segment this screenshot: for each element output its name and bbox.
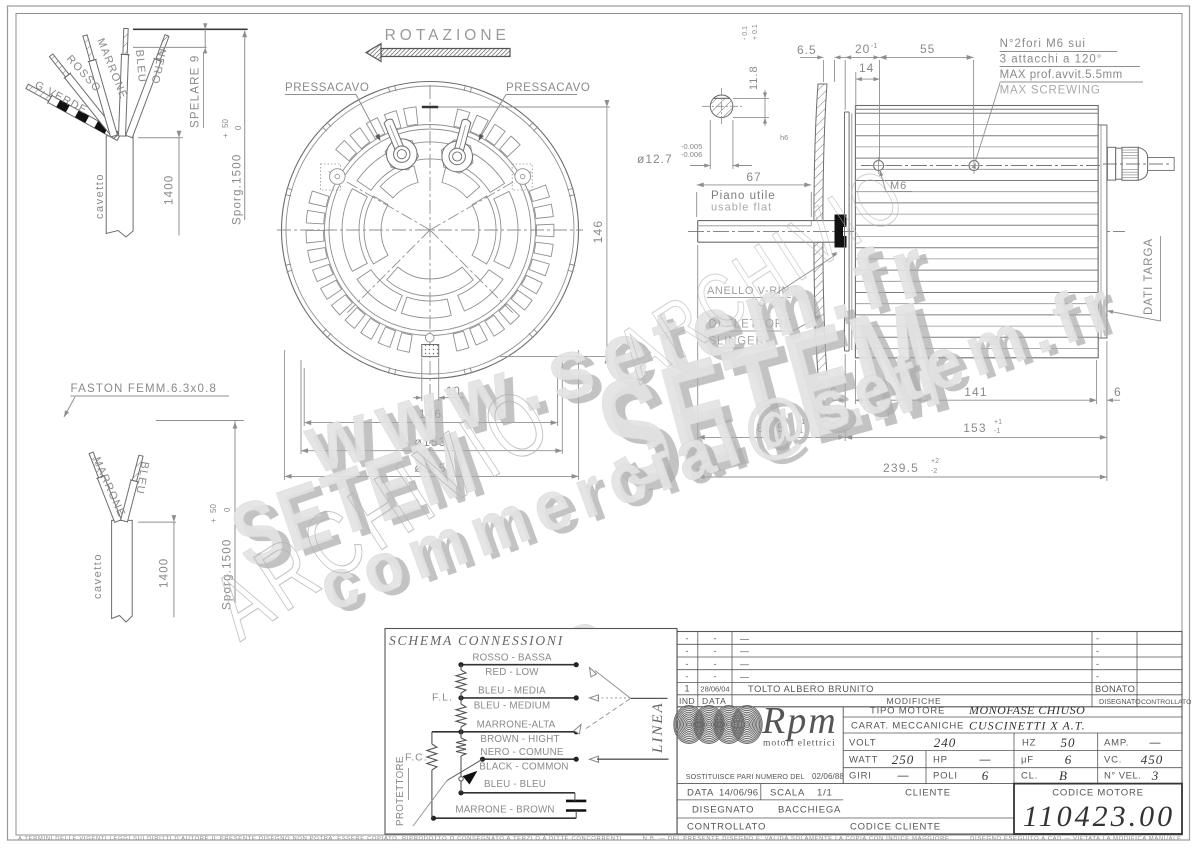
svg-text:DATA: DATA (687, 788, 714, 799)
svg-text:-: - (1096, 646, 1099, 656)
svg-text:MARRONE - BROWN: MARRONE - BROWN (455, 805, 554, 816)
svg-text:ø12.7: ø12.7 (637, 152, 673, 166)
svg-text:250: 250 (892, 752, 915, 767)
svg-text:CARAT. MECCANICHE: CARAT. MECCANICHE (851, 721, 964, 732)
svg-text:—: — (1150, 737, 1161, 749)
svg-text:Piano utile: Piano utile (711, 190, 776, 202)
svg-text:A TERMINI DELLE VIGENTI LEGGI: A TERMINI DELLE VIGENTI LEGGI SUI DIRITT… (18, 836, 1181, 842)
svg-text:50: 50 (221, 119, 230, 128)
svg-text:cavetto: cavetto (94, 173, 106, 219)
svg-text:DISEGNATO: DISEGNATO (692, 805, 754, 816)
svg-text:TOLTO ALBERO BRUNITO: TOLTO ALBERO BRUNITO (748, 684, 874, 694)
svg-text:BONATO: BONATO (1095, 684, 1135, 694)
svg-text:B: B (1059, 768, 1067, 783)
svg-text:DATI TARGA: DATI TARGA (1143, 238, 1155, 315)
svg-text:HP: HP (933, 755, 948, 766)
svg-text:+ 0.1: + 0.1 (752, 24, 759, 40)
svg-text:6.5: 6.5 (797, 43, 817, 57)
svg-text:MARRONE-ALTA: MARRONE-ALTA (477, 720, 556, 731)
svg-text:h6: h6 (780, 133, 788, 142)
svg-text:50: 50 (1061, 735, 1076, 750)
svg-text:+: + (221, 133, 230, 138)
svg-text:1/1: 1/1 (817, 788, 833, 799)
svg-text:110423.00: 110423.00 (1023, 800, 1175, 833)
svg-text:6: 6 (982, 768, 989, 783)
svg-text:motori elettrici: motori elettrici (763, 739, 836, 749)
svg-text:- 0.1: - 0.1 (742, 26, 749, 40)
svg-text:F.L.: F.L. (432, 692, 453, 704)
svg-text:MONOFASE CHIUSO: MONOFASE CHIUSO (968, 703, 1085, 717)
svg-text:WATT: WATT (849, 755, 878, 766)
svg-text:—: — (740, 646, 749, 656)
svg-text:02/06/88: 02/06/88 (812, 772, 844, 781)
svg-text:PROTETTORE: PROTETTORE (395, 756, 406, 826)
svg-text:-1: -1 (994, 428, 1000, 435)
svg-text:HZ: HZ (1022, 738, 1036, 749)
svg-text:-2: -2 (931, 468, 937, 475)
svg-text:3: 3 (1151, 768, 1159, 783)
svg-text:55: 55 (920, 42, 935, 56)
svg-text:LINEA: LINEA (650, 701, 666, 754)
svg-text:3 attacchi a 120°: 3 attacchi a 120° (1000, 54, 1103, 66)
svg-text:+: + (209, 518, 218, 523)
svg-text:—: — (740, 659, 749, 669)
svg-text:14: 14 (859, 61, 874, 75)
svg-text:RED - LOW: RED - LOW (485, 667, 539, 678)
svg-text:μF: μF (1021, 755, 1034, 766)
svg-text:BACCHIEGA: BACCHIEGA (778, 805, 841, 816)
svg-text:BROWN - HIGHT: BROWN - HIGHT (480, 734, 559, 745)
svg-text:NERO - COMUNE: NERO - COMUNE (480, 747, 563, 758)
svg-text:BLACK - COMMON: BLACK - COMMON (479, 762, 568, 773)
svg-text:TIPO MOTORE: TIPO MOTORE (870, 706, 945, 717)
svg-text:DATA: DATA (702, 696, 727, 706)
svg-text:SCHEMA CONNESSIONI: SCHEMA CONNESSIONI (389, 633, 564, 648)
svg-text:-: - (1096, 659, 1099, 669)
svg-text:CUSCINETTI X A.T.: CUSCINETTI X A.T. (969, 719, 1086, 733)
svg-text:BLEU - MEDIA: BLEU - MEDIA (478, 686, 546, 697)
svg-text:MAX SCREWING: MAX SCREWING (1000, 85, 1101, 97)
svg-text:-: - (714, 646, 717, 656)
svg-text:AMP.: AMP. (1104, 738, 1129, 749)
svg-text:SPELARE 9: SPELARE 9 (190, 55, 202, 128)
svg-text:IND: IND (679, 696, 695, 706)
svg-text:GIRI: GIRI (849, 771, 872, 782)
svg-text:CONTROLLATO: CONTROLLATO (1141, 699, 1191, 706)
svg-text:0: 0 (234, 125, 243, 130)
svg-text:PRESSACAVO: PRESSACAVO (506, 82, 590, 94)
svg-text:1400: 1400 (164, 175, 176, 205)
svg-text:POLI: POLI (933, 771, 958, 782)
svg-text:+2: +2 (931, 458, 939, 465)
svg-text:VC.: VC. (1104, 755, 1122, 766)
svg-text:-1: -1 (871, 43, 877, 50)
svg-text:SOSTITUISCE PARI NUMERO DEL: SOSTITUISCE PARI NUMERO DEL (686, 772, 805, 781)
svg-text:N° VEL.: N° VEL. (1104, 771, 1141, 782)
svg-text:ROTAZIONE: ROTAZIONE (385, 27, 510, 44)
svg-text:-: - (714, 672, 717, 682)
svg-text:CONTROLLATO: CONTROLLATO (687, 822, 766, 833)
svg-text:14/06/96: 14/06/96 (719, 788, 758, 799)
svg-text:6: 6 (1065, 752, 1072, 767)
svg-text:CLIENTE: CLIENTE (905, 788, 951, 799)
svg-text:1: 1 (684, 684, 689, 694)
svg-text:MODIFICHE: MODIFICHE (887, 696, 942, 706)
svg-text:Sporg.1500: Sporg.1500 (232, 154, 244, 225)
svg-text:BLEU - BLEU: BLEU - BLEU (484, 779, 546, 790)
svg-text:6: 6 (1114, 385, 1121, 399)
svg-text:-: - (1096, 672, 1099, 682)
svg-text:28/06/04: 28/06/04 (700, 685, 729, 694)
svg-text:67: 67 (746, 170, 761, 184)
svg-text:—: — (740, 634, 749, 644)
svg-text:F.C.: F.C. (405, 752, 428, 764)
svg-text:BLEU - MEDIUM: BLEU - MEDIUM (474, 701, 551, 712)
svg-text:+1: +1 (994, 419, 1002, 426)
svg-text:-: - (686, 672, 689, 682)
svg-text:20: 20 (855, 42, 870, 56)
svg-text:146: 146 (591, 220, 605, 244)
svg-text:Rpm: Rpm (761, 700, 838, 742)
svg-text:ROSSO - BASSA: ROSSO - BASSA (472, 653, 552, 664)
svg-text:CODICE CLIENTE: CODICE CLIENTE (850, 822, 941, 833)
svg-text:DISEGNATO: DISEGNATO (1099, 697, 1141, 706)
svg-text:240: 240 (934, 735, 957, 750)
svg-text:N°2fori M6 sui: N°2fori M6 sui (1000, 38, 1086, 50)
svg-text:CL.: CL. (1021, 771, 1038, 782)
svg-text:-: - (714, 634, 717, 644)
svg-text:-: - (686, 646, 689, 656)
svg-text:-: - (714, 659, 717, 669)
svg-text:VOLT: VOLT (849, 738, 876, 749)
svg-text:-: - (686, 634, 689, 644)
svg-text:50: 50 (209, 504, 218, 513)
svg-text:FASTON FEMM.6.3x0.8: FASTON FEMM.6.3x0.8 (71, 383, 218, 395)
svg-text:—: — (980, 754, 991, 766)
svg-text:—: — (740, 672, 749, 682)
svg-text:450: 450 (1141, 752, 1164, 767)
svg-text:-: - (1096, 634, 1099, 644)
svg-text:CODICE MOTORE: CODICE MOTORE (1052, 788, 1144, 799)
svg-text:11.8: 11.8 (748, 65, 760, 90)
svg-text:usable flat: usable flat (711, 202, 772, 214)
svg-text:-: - (686, 659, 689, 669)
svg-text:cavetto: cavetto (92, 553, 104, 599)
svg-text:153: 153 (963, 421, 987, 435)
svg-text:MAX prof.avvit.5.5mm: MAX prof.avvit.5.5mm (1000, 69, 1123, 81)
svg-text:1400: 1400 (159, 558, 171, 588)
svg-text:-0.006: -0.006 (681, 150, 702, 159)
svg-text:—: — (898, 770, 909, 782)
svg-text:PRESSACAVO: PRESSACAVO (285, 82, 369, 94)
svg-text:239.5: 239.5 (883, 461, 919, 475)
svg-text:SCALA: SCALA (770, 788, 805, 799)
